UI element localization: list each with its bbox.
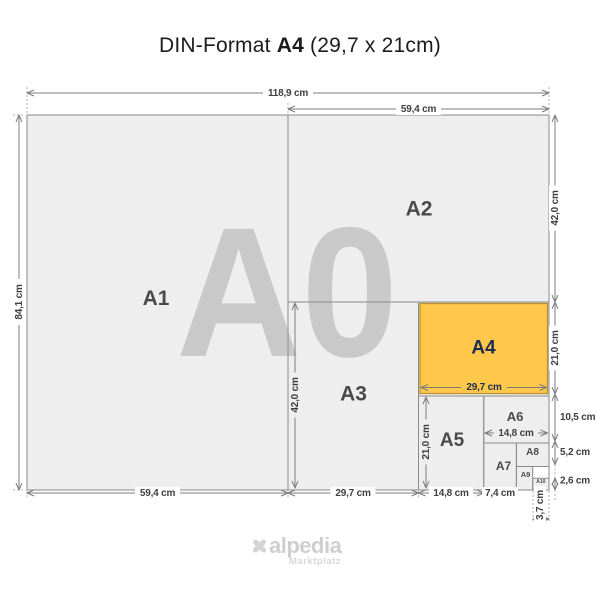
brand-name: alpedia — [269, 533, 343, 558]
dim-a2-height: 42,0 cm — [549, 186, 561, 231]
svg-text:3,7 cm: 3,7 cm — [535, 490, 546, 520]
dim-total-width: 118,9 cm — [263, 87, 313, 99]
dim-a7-width: 7,4 cm — [482, 487, 518, 499]
svg-text:14,8 cm: 14,8 cm — [498, 428, 534, 439]
dim-a1-width: 59,4 cm — [135, 487, 180, 499]
svg-text:59,4 cm: 59,4 cm — [140, 488, 176, 499]
dim-a3-height: 42,0 cm — [289, 373, 301, 418]
dim-a8-height: 5,2 cm — [560, 447, 590, 458]
dim-a10-height: 2,6 cm — [560, 476, 590, 487]
dim-a4-width: 29,7 cm — [461, 382, 507, 393]
label-a6: A6 — [507, 409, 524, 424]
dim-a9-width: 3,7 cm — [534, 486, 546, 524]
svg-text:59,4 cm: 59,4 cm — [401, 104, 437, 115]
label-a7: A7 — [496, 459, 512, 473]
label-a5: A5 — [440, 430, 465, 451]
svg-text:84,1 cm: 84,1 cm — [14, 284, 25, 320]
label-a3: A3 — [340, 383, 367, 406]
svg-text:42,0 cm: 42,0 cm — [290, 377, 301, 413]
dim-a5-width: 14,8 cm — [429, 487, 473, 499]
dim-a6-height: 10,5 cm — [560, 412, 596, 423]
svg-text:14,8 cm: 14,8 cm — [433, 488, 469, 499]
svg-text:21,0 cm: 21,0 cm — [550, 330, 561, 366]
label-a2: A2 — [406, 198, 433, 221]
brand-tagline: Marktplatz — [289, 556, 341, 567]
dim-a3-width: 29,7 cm — [331, 487, 376, 499]
label-a9: A9 — [521, 470, 531, 479]
svg-text:7,4 cm: 7,4 cm — [485, 488, 515, 499]
dim-a4-height: 21,0 cm — [549, 326, 561, 371]
label-a8: A8 — [526, 447, 539, 458]
label-a10: A10 — [536, 479, 545, 485]
a0-watermark-label: A0 — [176, 190, 398, 396]
svg-text:118,9 cm: 118,9 cm — [268, 88, 308, 99]
din-format-diagram: DIN-Format A4 (29,7 x 21cm) A0 — [0, 0, 600, 600]
svg-text:21,0 cm: 21,0 cm — [421, 424, 432, 460]
alpedia-logo-icon — [252, 538, 268, 554]
label-a1: A1 — [143, 287, 170, 310]
svg-text:29,7 cm: 29,7 cm — [466, 382, 502, 393]
footer-brand: alpedia Marktplatz — [252, 533, 343, 567]
paper-sizes-figure: A0 — [0, 0, 600, 600]
svg-text:29,7 cm: 29,7 cm — [335, 488, 371, 499]
dim-a5-height: 21,0 cm — [420, 420, 432, 465]
dim-a6-width: 14,8 cm — [494, 428, 538, 440]
dim-a2-width: 59,4 cm — [396, 103, 441, 115]
label-a4: A4 — [471, 338, 496, 359]
svg-text:42,0 cm: 42,0 cm — [550, 190, 561, 226]
dim-total-height: 84,1 cm — [13, 279, 25, 325]
